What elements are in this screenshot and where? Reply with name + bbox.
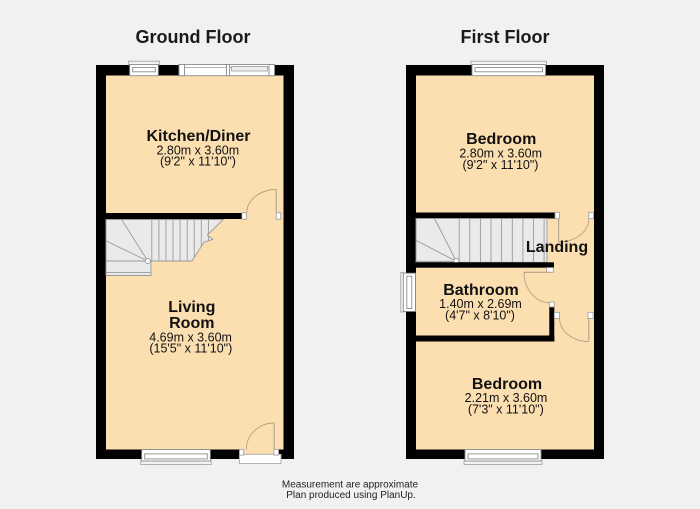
- svg-text:First Floor: First Floor: [461, 27, 550, 47]
- svg-text:Plan produced using PlanUp.: Plan produced using PlanUp.: [286, 490, 416, 501]
- svg-text:(7'3" x 11'10"): (7'3" x 11'10"): [468, 402, 544, 416]
- svg-text:Ground Floor: Ground Floor: [136, 27, 251, 47]
- svg-text:Landing: Landing: [526, 239, 588, 256]
- svg-text:Measurement are approximate: Measurement are approximate: [282, 479, 419, 490]
- svg-text:Bedroom: Bedroom: [466, 131, 536, 148]
- svg-text:(9'2" x 11'10"): (9'2" x 11'10"): [160, 155, 236, 169]
- svg-text:(9'2" x 11'10"): (9'2" x 11'10"): [463, 158, 539, 172]
- svg-text:Living: Living: [168, 299, 215, 316]
- svg-text:(4'7" x 8'10"): (4'7" x 8'10"): [445, 309, 515, 323]
- svg-text:(15'5" x 11'10"): (15'5" x 11'10"): [149, 342, 232, 356]
